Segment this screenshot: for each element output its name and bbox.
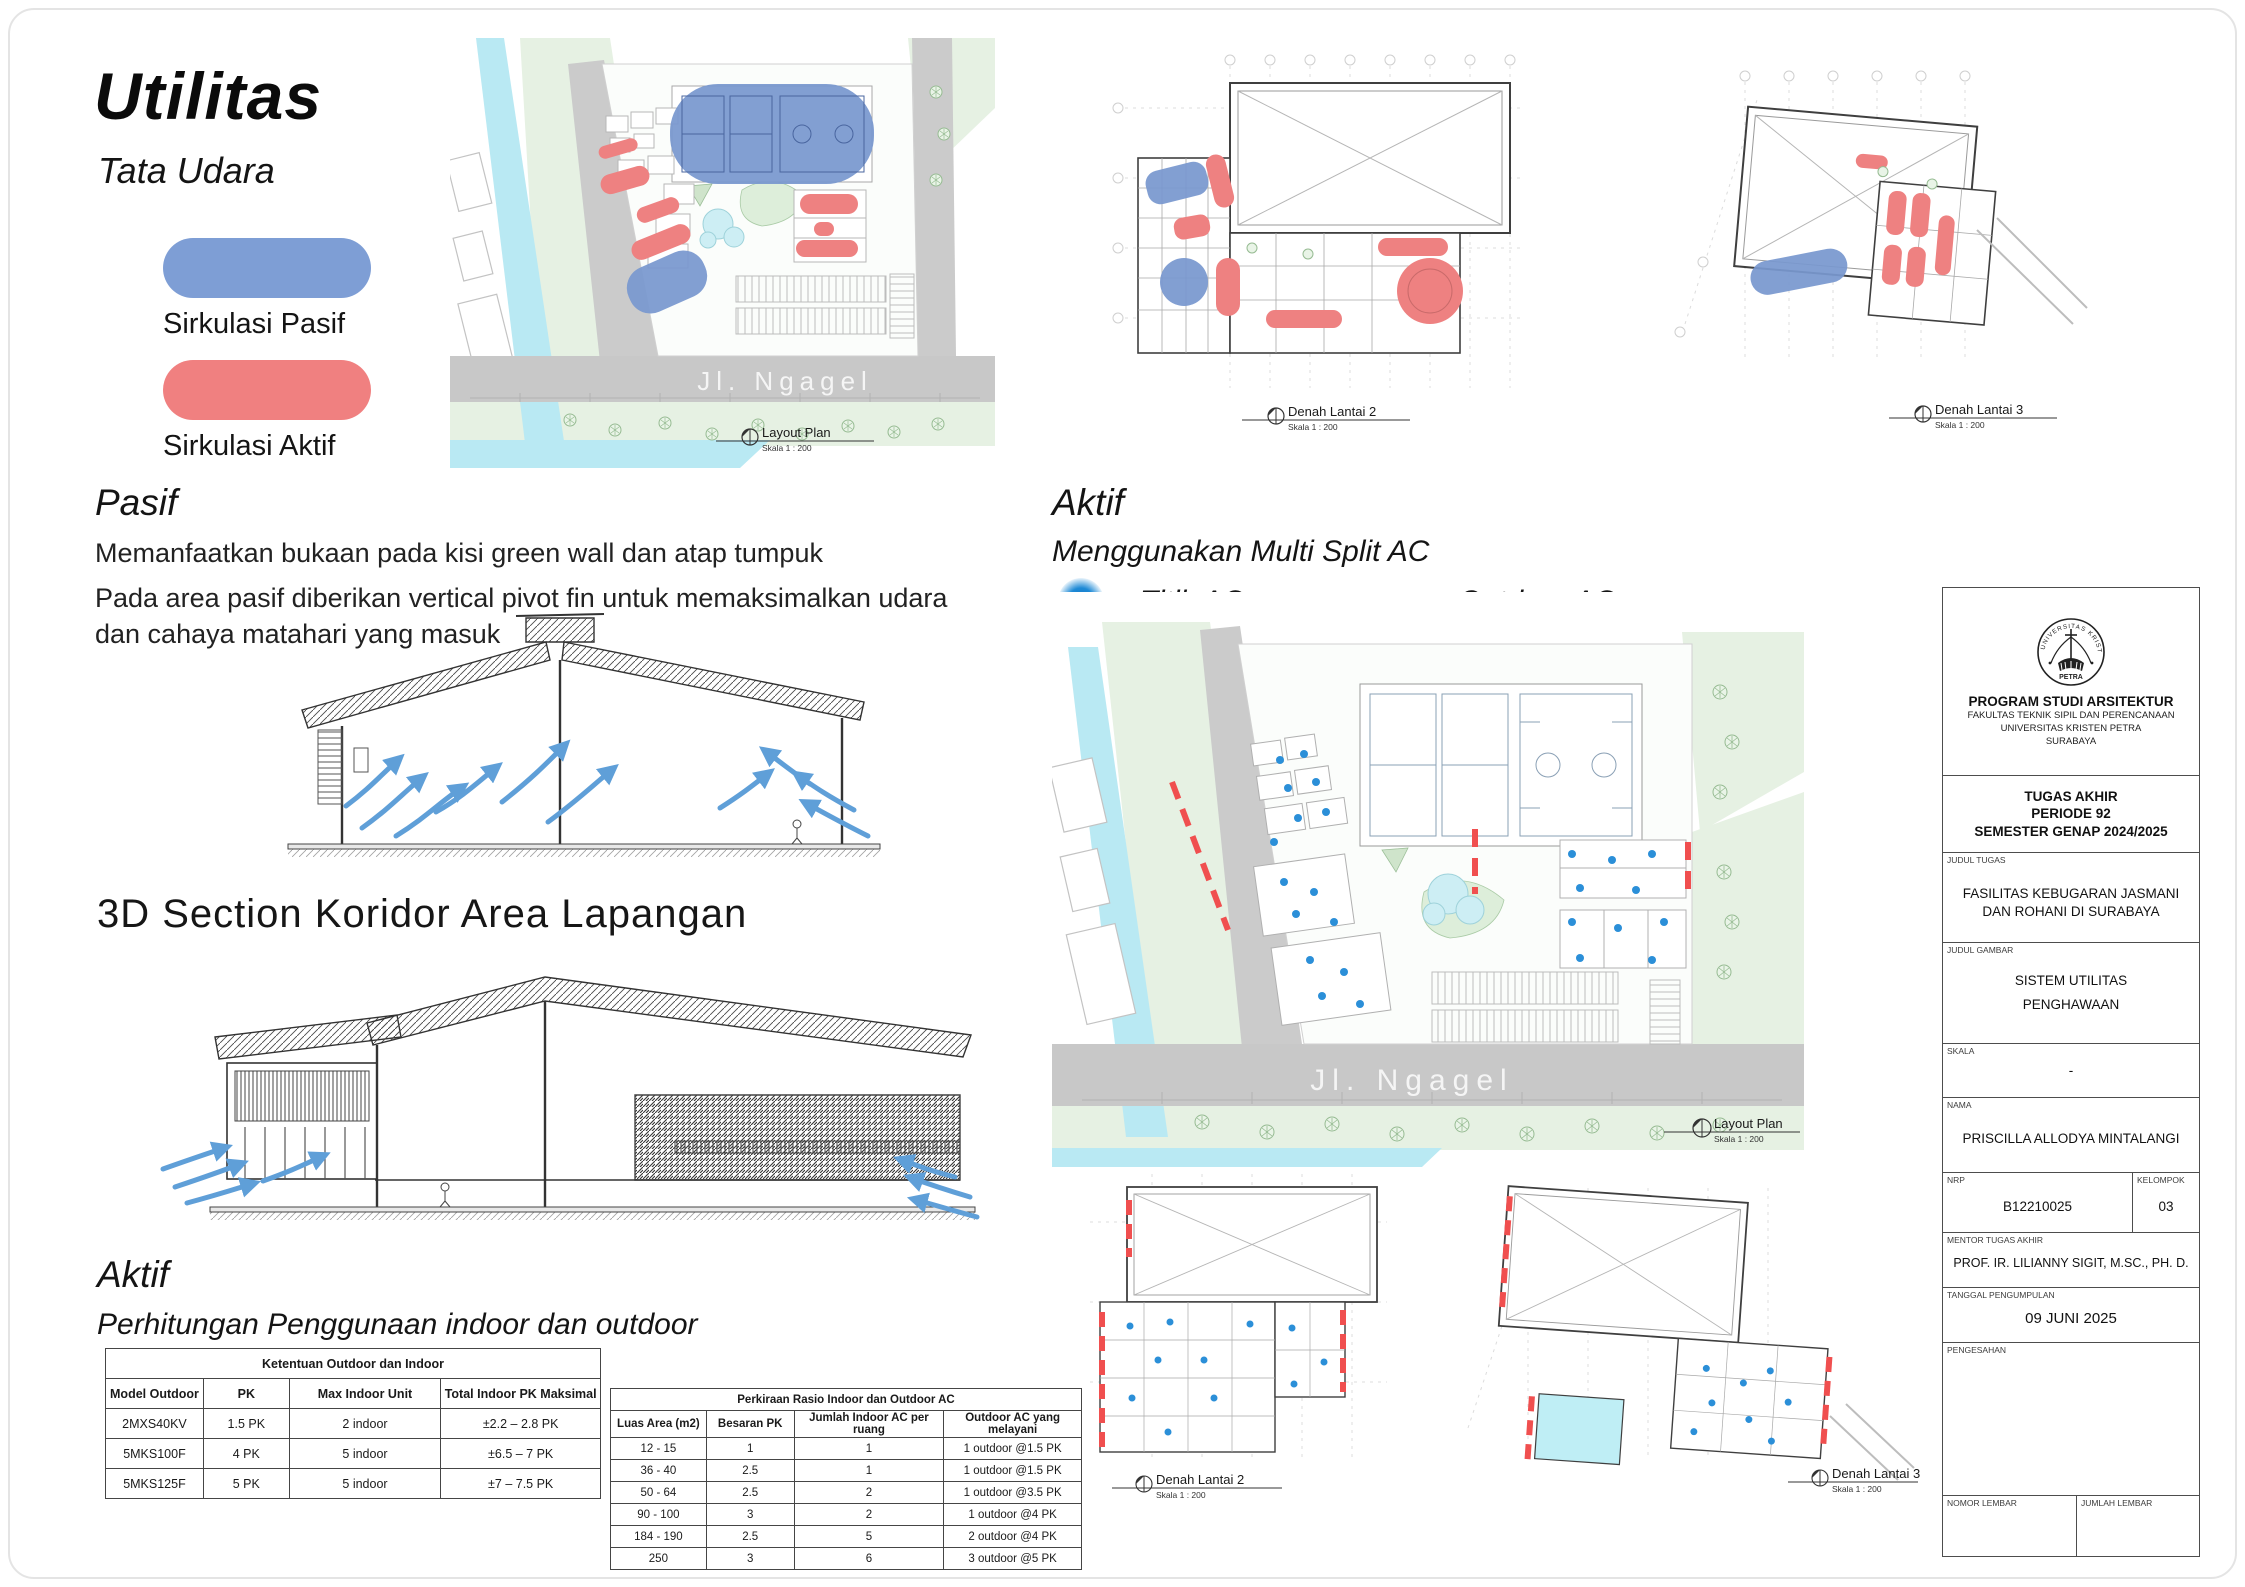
wing-outline	[1100, 1302, 1345, 1452]
plan-label-denah3-top: Denah Lantai 3 Skala 1 : 200	[1889, 402, 2057, 430]
program-name: PROGRAM STUDI ARSITEKTUR	[1969, 693, 2174, 711]
mentor-value: PROF. IR. LILIANNY SIGIT, M.SC., PH. D.	[1949, 1248, 2192, 1272]
roof-main-truss	[367, 977, 971, 1057]
sirkulasi-aktif-label: Sirkulasi Aktif	[163, 430, 335, 463]
aktif-heading: Aktif	[1052, 482, 1124, 524]
university-name: UNIVERSITAS KRISTEN PETRA	[1967, 723, 2174, 736]
title-block-judul-gambar: JUDUL GAMBAR SISTEM UTILITAS PENGHAWAAN	[1943, 943, 2199, 1044]
section-3d-drawing	[115, 945, 990, 1255]
pasif-section-drawing	[250, 598, 915, 888]
faculty-name: FAKULTAS TEKNIK SIPIL DAN PERENCANAAN	[1967, 710, 2174, 723]
layout-plan-top: Jl. Ngagel Layout Plan Skala 1 : 200	[450, 38, 995, 468]
title-block-lembar: NOMOR LEMBAR JUMLAH LEMBAR	[1943, 1496, 2199, 1556]
svg-text:Denah Lantai 3: Denah Lantai 3	[1832, 1466, 1920, 1481]
balustrade	[675, 1141, 960, 1153]
building	[1731, 107, 2001, 325]
ground-line	[210, 1207, 975, 1212]
plan-label-denah2-bottom: Denah Lantai 2 Skala 1 : 200	[1112, 1472, 1282, 1500]
pasif-heading: Pasif	[95, 482, 177, 524]
title-block-institution: UNIVERSITAS KRISTEN PETRA PROGRAM STUDI …	[1943, 588, 2199, 776]
human-figure	[440, 1183, 450, 1207]
ac-unit	[354, 748, 368, 772]
table-ketentuan: Ketentuan Outdoor dan IndoorModel Outdoo…	[105, 1348, 601, 1499]
tribune-seating	[635, 1095, 960, 1180]
title-block-nrp-kelompok: NRP B12210025 KELOMPOK 03	[1943, 1173, 2199, 1233]
svg-text:Skala 1 : 200: Skala 1 : 200	[762, 443, 812, 453]
roof-truss-left	[302, 642, 550, 728]
green-wall-louvers	[235, 1071, 369, 1121]
street-label: Jl. Ngagel	[1310, 1064, 1513, 1097]
aktif-calc-subtitle: Perhitungan Penggunaan indoor dan outdoo…	[97, 1308, 698, 1342]
svg-text:Skala 1 : 200: Skala 1 : 200	[1714, 1134, 1764, 1144]
svg-text:Layout Plan: Layout Plan	[1714, 1116, 1783, 1131]
title-block-mentor: MENTOR TUGAS AKHIR PROF. IR. LILIANNY SI…	[1943, 1233, 2199, 1288]
denah-lantai-3-bottom: Denah Lantai 3 Skala 1 : 200	[1428, 1178, 1920, 1510]
page-subtitle: Tata Udara	[98, 150, 275, 192]
ground-line	[288, 844, 880, 849]
roof-truss-right	[562, 642, 864, 720]
petra-logo: UNIVERSITAS KRISTEN PETRA	[2034, 615, 2108, 689]
plan-label-denah2-top: Denah Lantai 2 Skala 1 : 200	[1242, 404, 1410, 432]
city-name: SURABAYA	[1967, 736, 2174, 749]
judul-gambar-line2: PENGHAWAAN	[2023, 996, 2120, 1014]
pool	[1535, 1394, 1624, 1465]
judul-gambar-line1: SISTEM UTILITAS	[2015, 972, 2127, 990]
title-block-tanggal: TANGGAL PENGUMPULAN 09 JUNI 2025	[1943, 1288, 2199, 1343]
judul-tugas-value: FASILITAS KEBUGARAN JASMANI DAN ROHANI D…	[1943, 875, 2199, 920]
building	[1490, 1186, 1840, 1480]
denah-lantai-2-top: Denah Lantai 2 Skala 1 : 200	[1080, 48, 1560, 448]
title-block-judul-tugas: JUDUL TUGAS FASILITAS KEBUGARAN JASMANI …	[1943, 853, 2199, 943]
svg-text:Skala 1 : 200: Skala 1 : 200	[1935, 420, 1985, 430]
svg-text:PETRA: PETRA	[2059, 674, 2083, 681]
pasif-line1: Memanfaatkan bukaan pada kisi green wall…	[95, 535, 995, 571]
denah-lantai-2-bottom: Denah Lantai 2 Skala 1 : 200	[1072, 1162, 1407, 1512]
sirkulasi-pasif-label: Sirkulasi Pasif	[163, 308, 345, 341]
title-block-pengesahan: PENGESAHAN	[1943, 1343, 2199, 1496]
aktif-subtitle: Menggunakan Multi Split AC	[1052, 535, 1429, 569]
road-east	[912, 38, 956, 356]
table-rasio: Perkiraan Rasio Indoor dan Outdoor ACLua…	[610, 1388, 1082, 1570]
page-title: Utilitas	[94, 58, 322, 134]
plan-label-denah3-bottom: Denah Lantai 3 Skala 1 : 200	[1788, 1466, 1920, 1494]
human-figure	[792, 820, 802, 844]
section-3d-heading: 3D Section Koridor Area Lapangan	[97, 892, 747, 937]
svg-text:Denah Lantai 3: Denah Lantai 3	[1935, 402, 2023, 417]
kelompok-value: 03	[2158, 1190, 2173, 1216]
nama-value: PRISCILLA ALLODYA MINTALANGI	[1952, 1122, 2189, 1148]
ridge-monitor	[526, 618, 594, 642]
title-block-project: TUGAS AKHIR PERIODE 92 SEMESTER GENAP 20…	[1943, 776, 2199, 853]
svg-text:Skala 1 : 200: Skala 1 : 200	[1832, 1484, 1882, 1494]
svg-text:Denah Lantai 2: Denah Lantai 2	[1288, 404, 1376, 419]
title-block-nama: NAMA PRISCILLA ALLODYA MINTALANGI	[1943, 1098, 2199, 1173]
access-road	[1977, 218, 2087, 324]
skala-value: -	[2069, 1062, 2074, 1080]
nrp-value: B12210025	[2003, 1190, 2072, 1216]
sirkulasi-pasif-swatch	[163, 238, 371, 298]
svg-text:Denah Lantai 2: Denah Lantai 2	[1156, 1472, 1244, 1487]
layout-plan-main: Jl. Ngagel Layout Plan Skala 1 : 200	[1052, 592, 1804, 1167]
street-label: Jl. Ngagel	[697, 366, 873, 396]
aktif-calc-heading: Aktif	[97, 1254, 169, 1296]
title-block: UNIVERSITAS KRISTEN PETRA PROGRAM STUDI …	[1942, 587, 2200, 1557]
title-block-skala: SKALA -	[1943, 1044, 2199, 1098]
louver-wall	[318, 730, 342, 804]
svg-text:Layout Plan: Layout Plan	[762, 425, 831, 440]
svg-text:Skala 1 : 200: Skala 1 : 200	[1156, 1490, 1206, 1500]
tanggal-value: 09 JUNI 2025	[2025, 1301, 2117, 1329]
airflow-arrows	[346, 744, 868, 836]
sirkulasi-aktif-swatch	[163, 360, 371, 420]
denah-lantai-3-top: Denah Lantai 3 Skala 1 : 200	[1625, 62, 2100, 460]
svg-text:Skala 1 : 200: Skala 1 : 200	[1288, 422, 1338, 432]
